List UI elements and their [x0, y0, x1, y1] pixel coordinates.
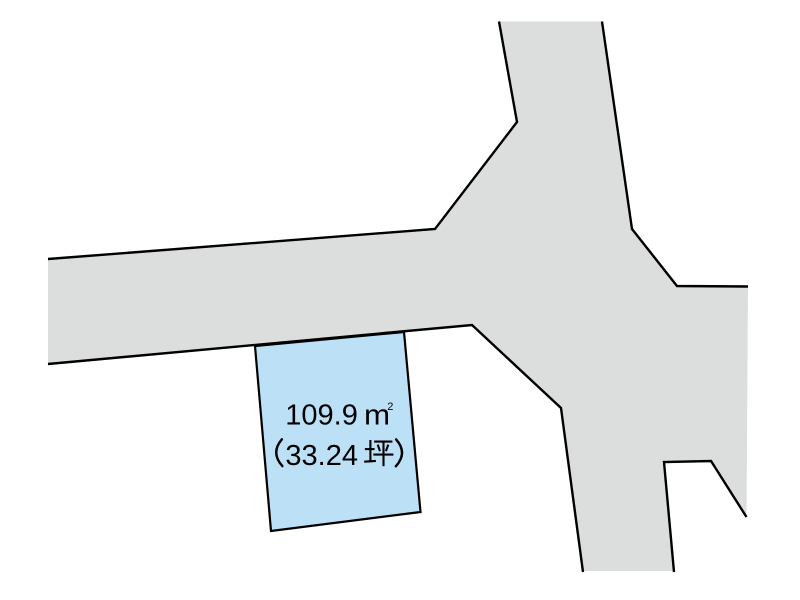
svg-text:33.24: 33.24 [285, 440, 358, 472]
svg-text:2: 2 [387, 401, 393, 413]
svg-text:109.9: 109.9 [285, 399, 358, 431]
svg-text:m: m [364, 399, 390, 431]
